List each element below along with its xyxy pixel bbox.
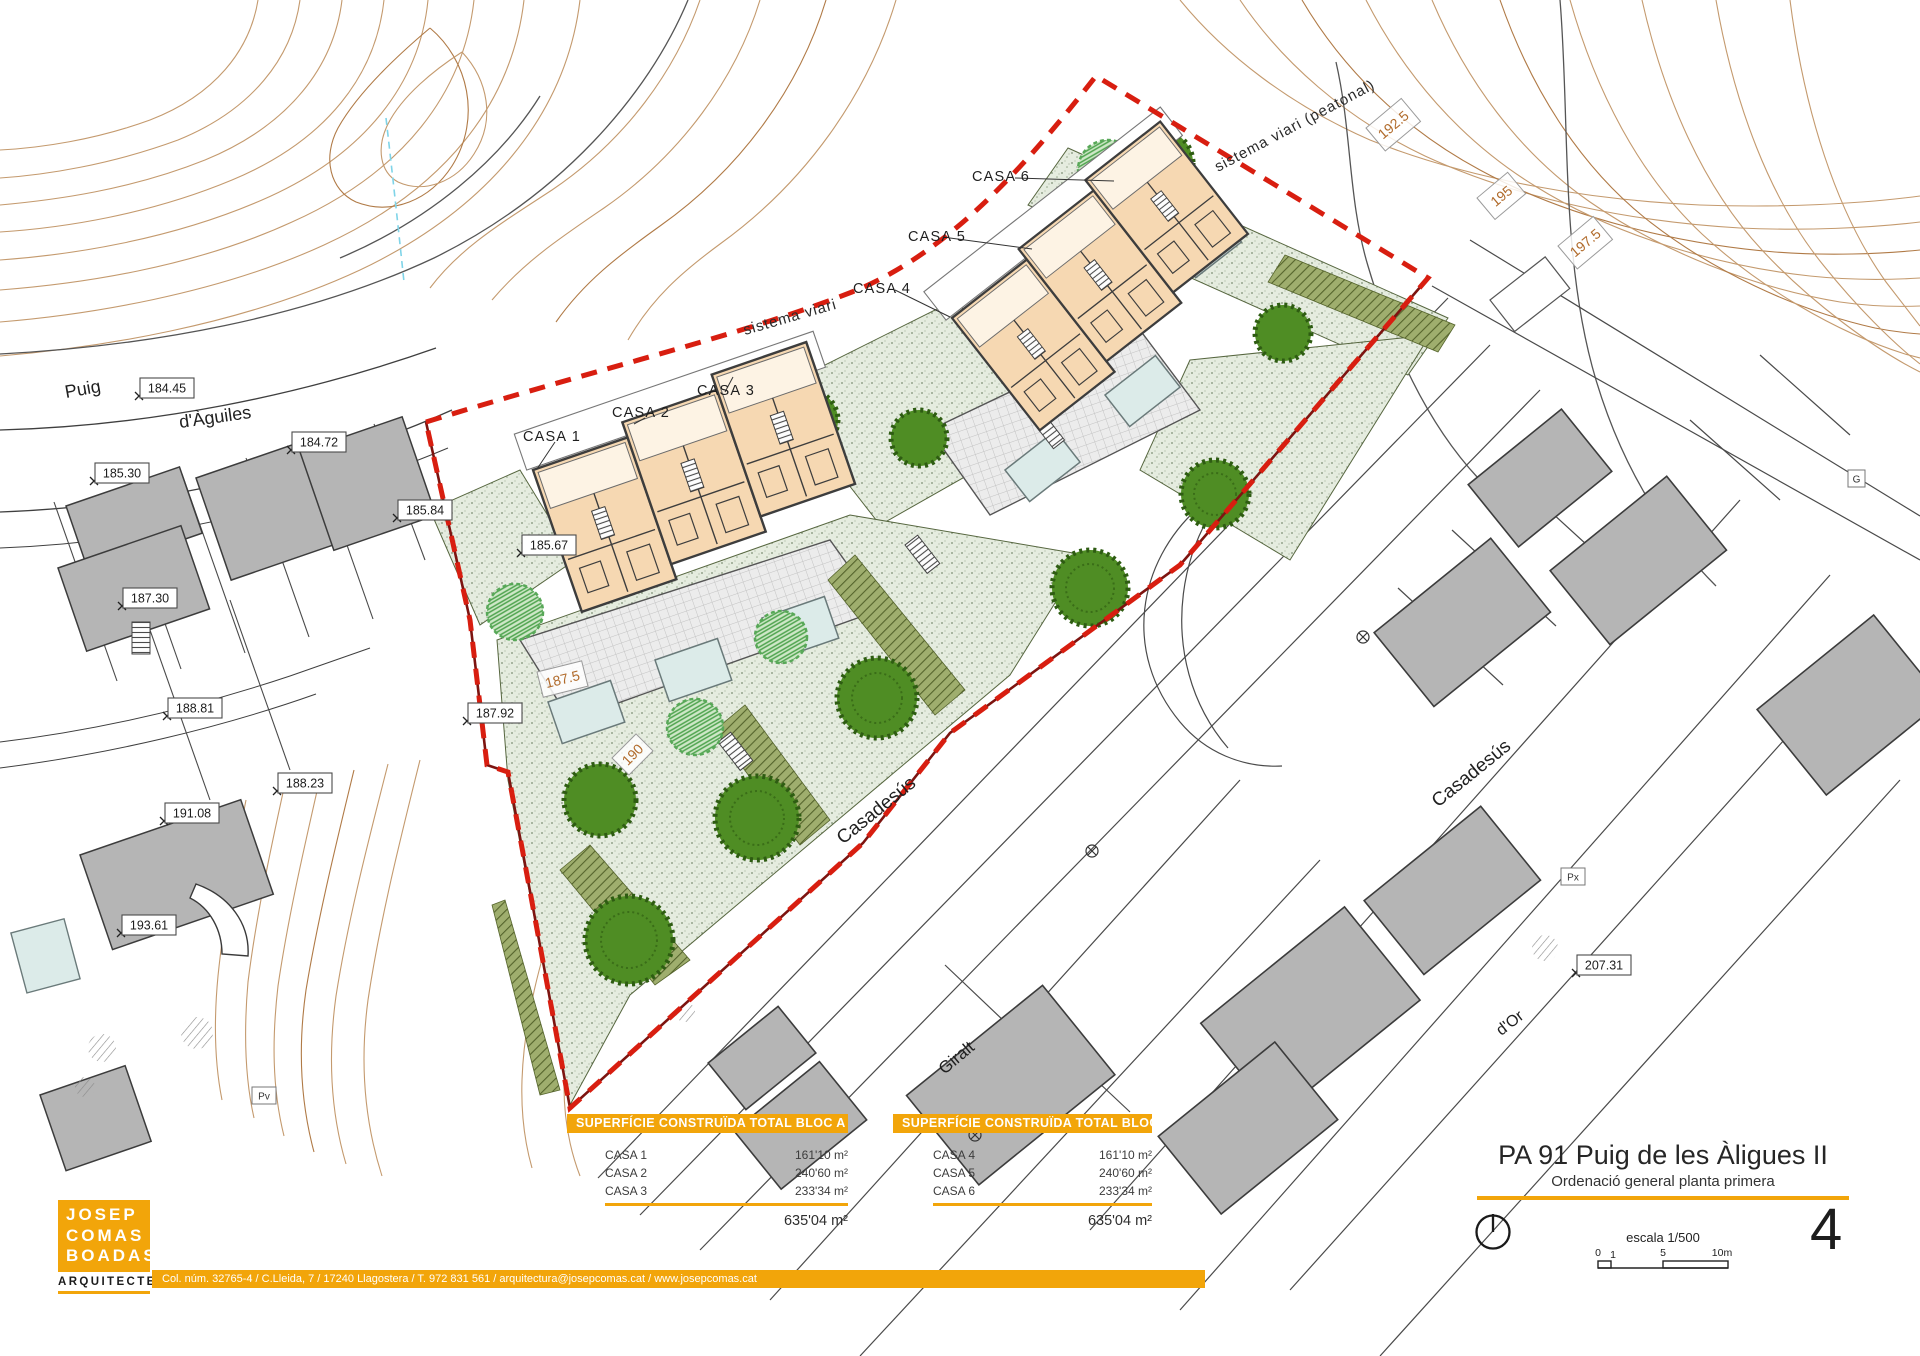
site-plan-sheet: { "plan": { "casa_labels": ["CASA 1", "C… bbox=[0, 0, 1920, 1356]
table-bloc-b-total: 635'04 m² bbox=[893, 1213, 1152, 1229]
small-structure-corner bbox=[1490, 257, 1570, 332]
logo-line-3: BOADAS bbox=[66, 1246, 150, 1267]
sistema-viari-label: sistema viari bbox=[741, 296, 838, 339]
table-bloc-a-header: SUPERFÍCIE CONSTRUÏDA TOTAL BLOC A bbox=[567, 1114, 848, 1133]
street-puig: Puig bbox=[63, 376, 102, 402]
svg-text:185.30: 185.30 bbox=[103, 467, 141, 481]
casa-3-label: CASA 3 bbox=[697, 383, 755, 399]
table-row: CASA 3 233'34 m² bbox=[567, 1182, 848, 1200]
casa-area: 240'60 m² bbox=[795, 1164, 848, 1182]
table-total-rule bbox=[605, 1203, 848, 1206]
casa-area: 233'34 m² bbox=[795, 1182, 848, 1200]
scale-bar: 0 1 5 10m escala 1/500 bbox=[1595, 1230, 1732, 1268]
street-casadesus-right: Casadesús bbox=[1428, 736, 1515, 812]
drawing-subtitle: Ordenació general planta primera bbox=[1477, 1173, 1849, 1190]
table-bloc-b-header: SUPERFÍCIE CONSTRUÏDA TOTAL BLOC B bbox=[893, 1114, 1152, 1133]
title-block: PA 91 Puig de les Àligues II Ordenació g… bbox=[1477, 1140, 1849, 1200]
logo-subtitle: ARQUITECTE bbox=[58, 1276, 150, 1288]
svg-text:187.92: 187.92 bbox=[476, 707, 514, 721]
casa-2-label: CASA 2 bbox=[612, 405, 670, 421]
casa-4-label: CASA 4 bbox=[853, 281, 911, 297]
title-rule bbox=[1477, 1196, 1849, 1200]
table-row: CASA 2 240'60 m² bbox=[567, 1164, 848, 1182]
scale-label: escala 1/500 bbox=[1626, 1230, 1700, 1245]
table-total-rule bbox=[933, 1203, 1152, 1206]
casa-label: CASA 2 bbox=[605, 1164, 647, 1182]
contour-lines-upper-left bbox=[0, 0, 896, 356]
scale-tick-10: 10m bbox=[1712, 1247, 1733, 1259]
casa-area: 240'60 m² bbox=[1099, 1164, 1152, 1182]
logo-box: JOSEP COMAS BOADAS bbox=[58, 1200, 150, 1272]
architect-logo: JOSEP COMAS BOADAS ARQUITECTE bbox=[58, 1200, 150, 1294]
svg-text:207.31: 207.31 bbox=[1585, 959, 1623, 973]
svg-text:191.08: 191.08 bbox=[173, 807, 211, 821]
casa-5-label: CASA 5 bbox=[908, 229, 966, 245]
logo-rule bbox=[58, 1291, 150, 1295]
casa-area: 161'10 m² bbox=[1099, 1146, 1152, 1164]
casa-label: CASA 1 bbox=[605, 1146, 647, 1164]
scale-tick-1: 1 bbox=[1610, 1249, 1616, 1261]
casa-1-label: CASA 1 bbox=[523, 429, 581, 445]
svg-text:188.81: 188.81 bbox=[176, 702, 214, 716]
svg-text:184.45: 184.45 bbox=[148, 382, 186, 396]
casa-label: CASA 5 bbox=[933, 1164, 975, 1182]
casa-label: CASA 3 bbox=[605, 1182, 647, 1200]
svg-text:188.23: 188.23 bbox=[286, 777, 324, 791]
drawing-title: PA 91 Puig de les Àligues II bbox=[1477, 1140, 1849, 1171]
street-daguiles: d'Àguiles bbox=[178, 402, 253, 432]
casa-6-label: CASA 6 bbox=[972, 169, 1030, 185]
svg-text:185.67: 185.67 bbox=[530, 539, 568, 553]
casa-area: 161'10 m² bbox=[795, 1146, 848, 1164]
scale-tick-0: 0 bbox=[1595, 1247, 1601, 1259]
svg-text:193.61: 193.61 bbox=[130, 919, 168, 933]
table-bloc-a-total: 635'04 m² bbox=[567, 1213, 848, 1229]
sistema-viari-peatonal-label: sistema viari (peatonal) bbox=[1212, 76, 1378, 175]
svg-text:G: G bbox=[1853, 475, 1861, 486]
table-bloc-b: SUPERFÍCIE CONSTRUÏDA TOTAL BLOC B CASA … bbox=[893, 1114, 1152, 1229]
svg-text:Pv: Pv bbox=[258, 1092, 270, 1103]
north-arrow-icon bbox=[1477, 1214, 1510, 1249]
table-row: CASA 5 240'60 m² bbox=[893, 1164, 1152, 1182]
casa-label: CASA 6 bbox=[933, 1182, 975, 1200]
casa-label: CASA 4 bbox=[933, 1146, 975, 1164]
scale-tick-5: 5 bbox=[1660, 1247, 1666, 1259]
table-bloc-a: SUPERFÍCIE CONSTRUÏDA TOTAL BLOC A CASA … bbox=[567, 1114, 848, 1229]
logo-line-1: JOSEP bbox=[66, 1205, 150, 1226]
table-row: CASA 4 161'10 m² bbox=[893, 1146, 1152, 1164]
street-dor: d'Or bbox=[1493, 1007, 1527, 1039]
svg-text:Px: Px bbox=[1567, 873, 1579, 884]
svg-text:187.30: 187.30 bbox=[131, 592, 169, 606]
sheet-number: 4 bbox=[1810, 1196, 1842, 1263]
table-row: CASA 6 233'34 m² bbox=[893, 1182, 1152, 1200]
left-pool bbox=[11, 919, 80, 993]
svg-text:184.72: 184.72 bbox=[300, 436, 338, 450]
logo-line-2: COMAS bbox=[66, 1226, 150, 1247]
table-row: CASA 1 161'10 m² bbox=[567, 1146, 848, 1164]
left-stair bbox=[132, 622, 150, 654]
casa-area: 233'34 m² bbox=[1099, 1182, 1152, 1200]
contact-footer-bar: Col. núm. 32765-4 / C.Lleida, 7 / 17240 … bbox=[152, 1270, 1205, 1288]
svg-text:185.84: 185.84 bbox=[406, 504, 444, 518]
